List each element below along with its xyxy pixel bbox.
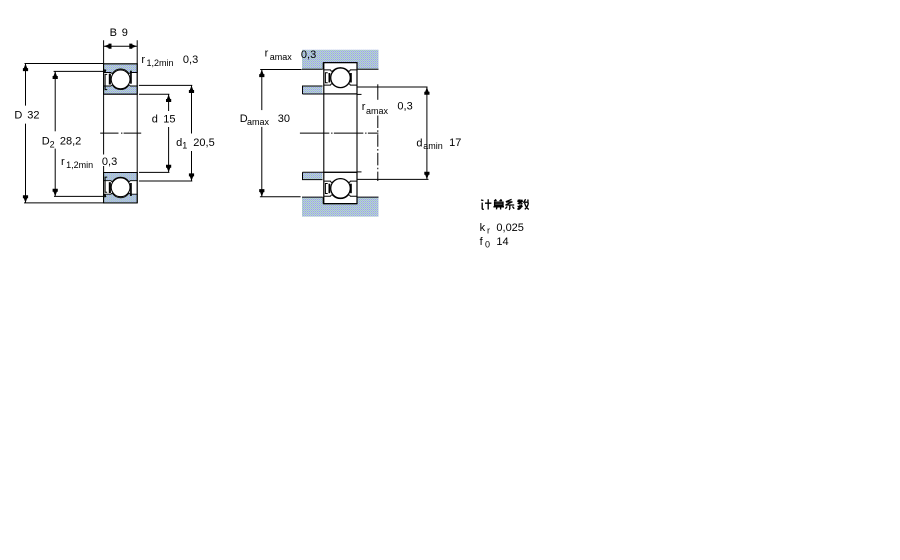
svg-text:d120,5: d120,5 <box>176 137 215 151</box>
svg-text:d15: d15 <box>152 113 176 125</box>
svg-text:D228,2: D228,2 <box>42 135 82 149</box>
svg-text:D32: D32 <box>14 110 39 122</box>
